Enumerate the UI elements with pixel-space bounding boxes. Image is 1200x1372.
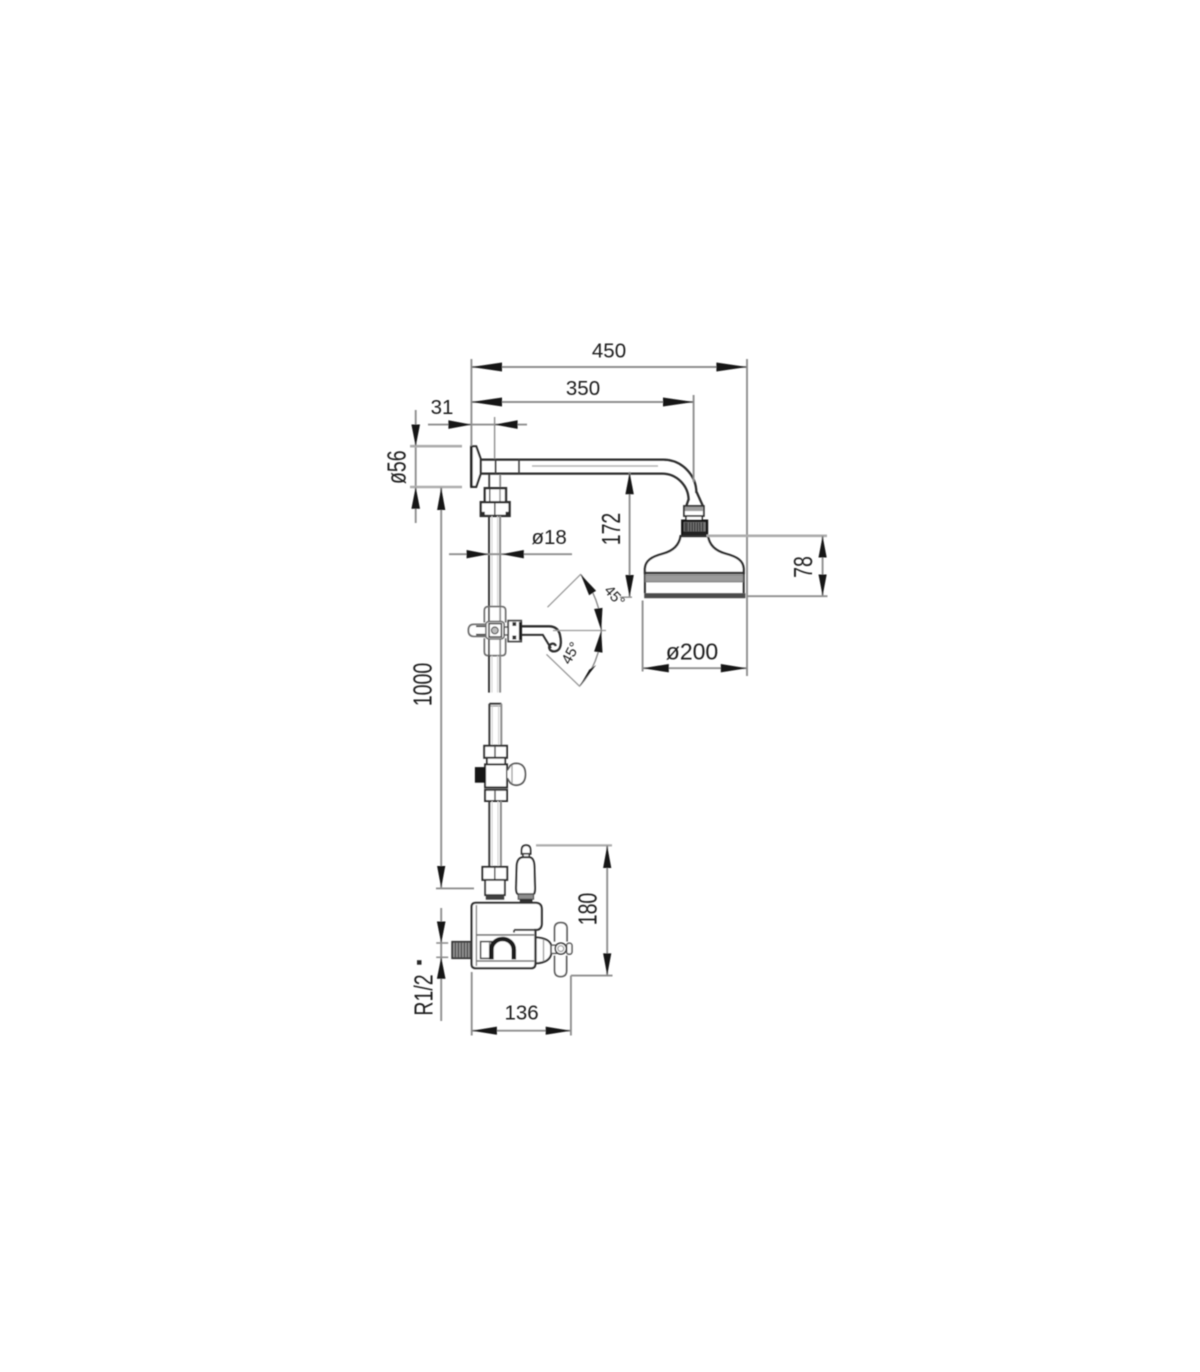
svg-text:45°: 45° [559, 640, 584, 667]
svg-text:45°: 45° [601, 583, 628, 610]
svg-text:1000: 1000 [408, 663, 437, 706]
svg-text:136: 136 [504, 1002, 538, 1025]
svg-text:ø200: ø200 [666, 639, 718, 665]
svg-text:31: 31 [431, 396, 454, 419]
svg-text:180: 180 [573, 893, 602, 926]
svg-text:ø56: ø56 [382, 450, 411, 484]
svg-text:350: 350 [566, 377, 600, 400]
svg-text:78: 78 [788, 556, 817, 578]
svg-text:R1/2: R1/2 [409, 974, 438, 1015]
svg-text:450: 450 [592, 340, 626, 363]
svg-text:172: 172 [596, 513, 625, 546]
svg-text:ø18: ø18 [532, 526, 567, 549]
